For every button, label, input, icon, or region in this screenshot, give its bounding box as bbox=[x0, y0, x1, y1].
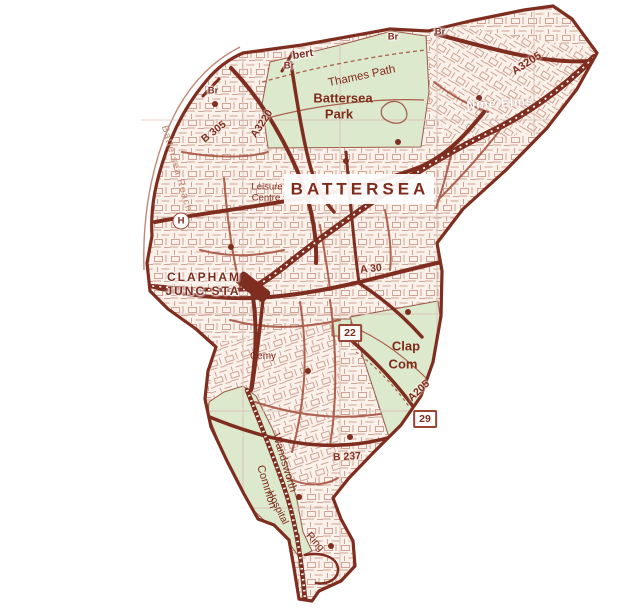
route-badge-29: 29 bbox=[413, 410, 437, 428]
map-canvas: BATTERSEA Battersea Park Thames Path ber… bbox=[0, 0, 630, 616]
label-battersea: BATTERSEA bbox=[291, 181, 430, 198]
label-leisure-centre-1: Leisure bbox=[251, 182, 282, 192]
label-leisure-centre-2: Centre bbox=[252, 193, 281, 203]
label-road-a30: A 30 bbox=[360, 263, 383, 276]
hospital-icon: H bbox=[173, 213, 190, 230]
route-badge-22: 22 bbox=[338, 324, 362, 342]
label-cemetery: Cemy bbox=[250, 352, 276, 362]
label-bridge-4: Br bbox=[435, 27, 446, 37]
label-bridge-1: Br bbox=[208, 86, 219, 96]
label-bridge-3: Br bbox=[388, 32, 399, 42]
label-clapham-junction-2: JUNC STA bbox=[165, 285, 240, 297]
label-bridge-2: Br bbox=[284, 61, 295, 71]
label-clapham-junction-1: CLAPHAM bbox=[167, 271, 241, 283]
label-clapham-common-1: Clap bbox=[392, 340, 420, 353]
label-battersea-park-2: Park bbox=[325, 108, 353, 121]
label-clapham-common-2: Com bbox=[389, 358, 418, 371]
label-battersea-park-1: Battersea bbox=[313, 92, 372, 105]
label-road-b237: B 237 bbox=[333, 451, 362, 463]
